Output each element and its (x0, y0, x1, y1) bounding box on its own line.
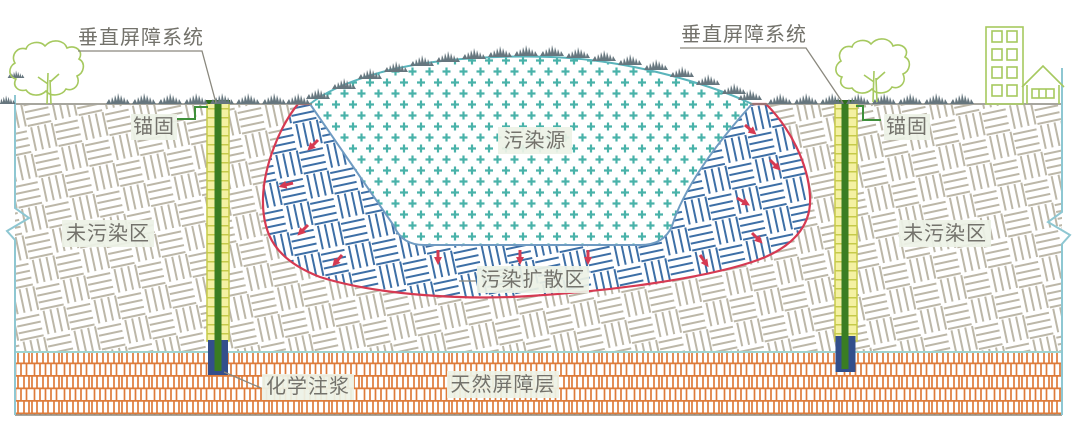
left-vertical-barrier (206, 100, 230, 375)
right-barrier-liner (842, 103, 849, 369)
house-icon (1022, 66, 1064, 104)
label-vertical-barrier-left: 垂直屏障系统 (78, 26, 204, 49)
left-barrier-liner (215, 103, 222, 371)
label-pollution-source: 污染源 (504, 129, 567, 152)
label-uncontaminated-left: 未污染区 (66, 222, 150, 245)
label-vertical-barrier-right: 垂直屏障系统 (681, 23, 807, 46)
right-vertical-barrier (834, 100, 858, 372)
tree-icon (836, 39, 909, 102)
label-natural-barrier: 天然屏障层 (451, 373, 556, 396)
diagram-canvas: 垂直屏障系统 垂直屏障系统 锚固 锚固 未污染区 未污染区 污染源 污染扩散区 … (0, 0, 1080, 430)
label-anchor-right: 锚固 (886, 115, 928, 138)
building-icon (986, 27, 1023, 104)
label-uncontaminated-right: 未污染区 (903, 222, 987, 245)
label-diffusion-zone: 污染扩散区 (481, 268, 586, 291)
containment-diagram: 垂直屏障系统 垂直屏障系统 锚固 锚固 未污染区 未污染区 污染源 污染扩散区 … (0, 0, 1080, 430)
tree-icon (10, 41, 83, 104)
label-anchor-left: 锚固 (133, 115, 175, 138)
label-chemical-grouting: 化学注浆 (266, 375, 350, 398)
